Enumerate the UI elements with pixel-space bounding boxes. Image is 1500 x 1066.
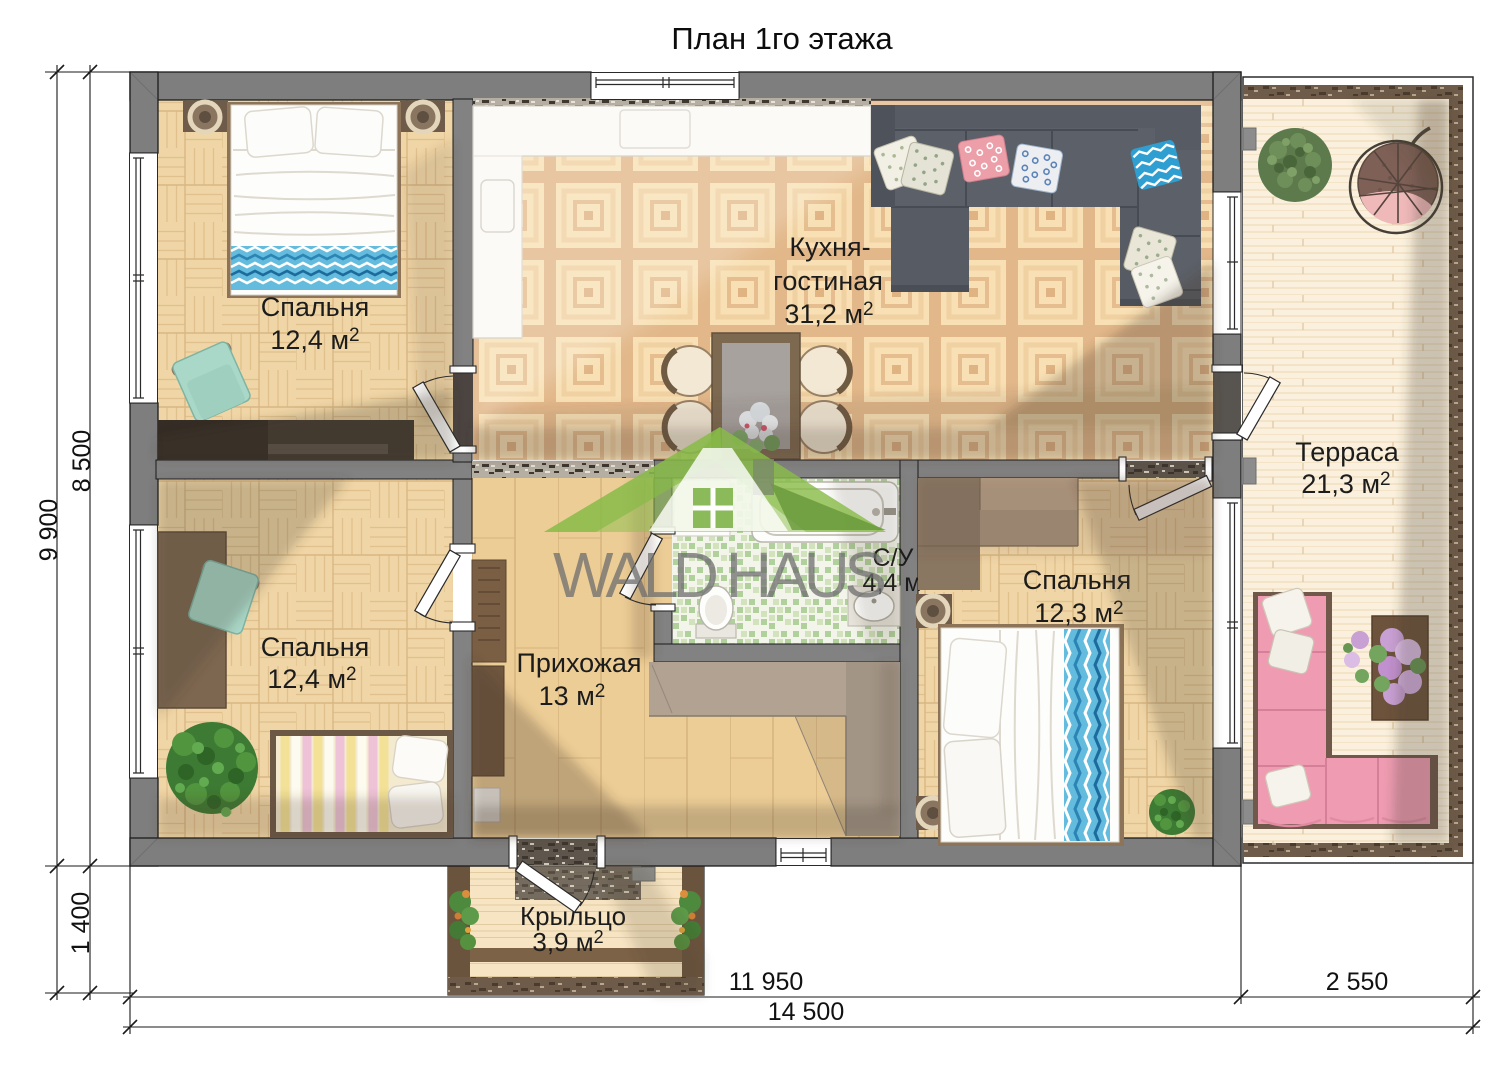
svg-text:2 550: 2 550: [1326, 968, 1389, 996]
svg-text:14 500: 14 500: [768, 998, 844, 1026]
svg-text:Кухня-: Кухня-: [789, 232, 870, 262]
svg-text:12,4 м2: 12,4 м2: [267, 664, 356, 694]
svg-text:31,2 м2: 31,2 м2: [784, 299, 873, 329]
svg-text:Спальня: Спальня: [261, 632, 370, 662]
svg-text:8 500: 8 500: [68, 430, 96, 493]
svg-text:21,3 м2: 21,3 м2: [1301, 469, 1390, 499]
svg-text:Прихожая: Прихожая: [516, 648, 641, 678]
svg-text:12,3 м2: 12,3 м2: [1034, 598, 1123, 628]
svg-text:Терраса: Терраса: [1295, 437, 1400, 467]
svg-text:12,4 м2: 12,4 м2: [270, 325, 359, 355]
svg-text:WALD HAUS: WALD HAUS: [553, 539, 887, 611]
svg-text:Спальня: Спальня: [261, 292, 370, 322]
svg-text:гостиная: гостиная: [773, 266, 883, 296]
svg-text:9 900: 9 900: [35, 499, 63, 562]
svg-text:План 1го этажа: План 1го этажа: [671, 21, 893, 56]
svg-text:11 950: 11 950: [729, 968, 804, 996]
svg-text:3,9 м2: 3,9 м2: [532, 927, 603, 957]
svg-text:1 400: 1 400: [67, 892, 95, 955]
